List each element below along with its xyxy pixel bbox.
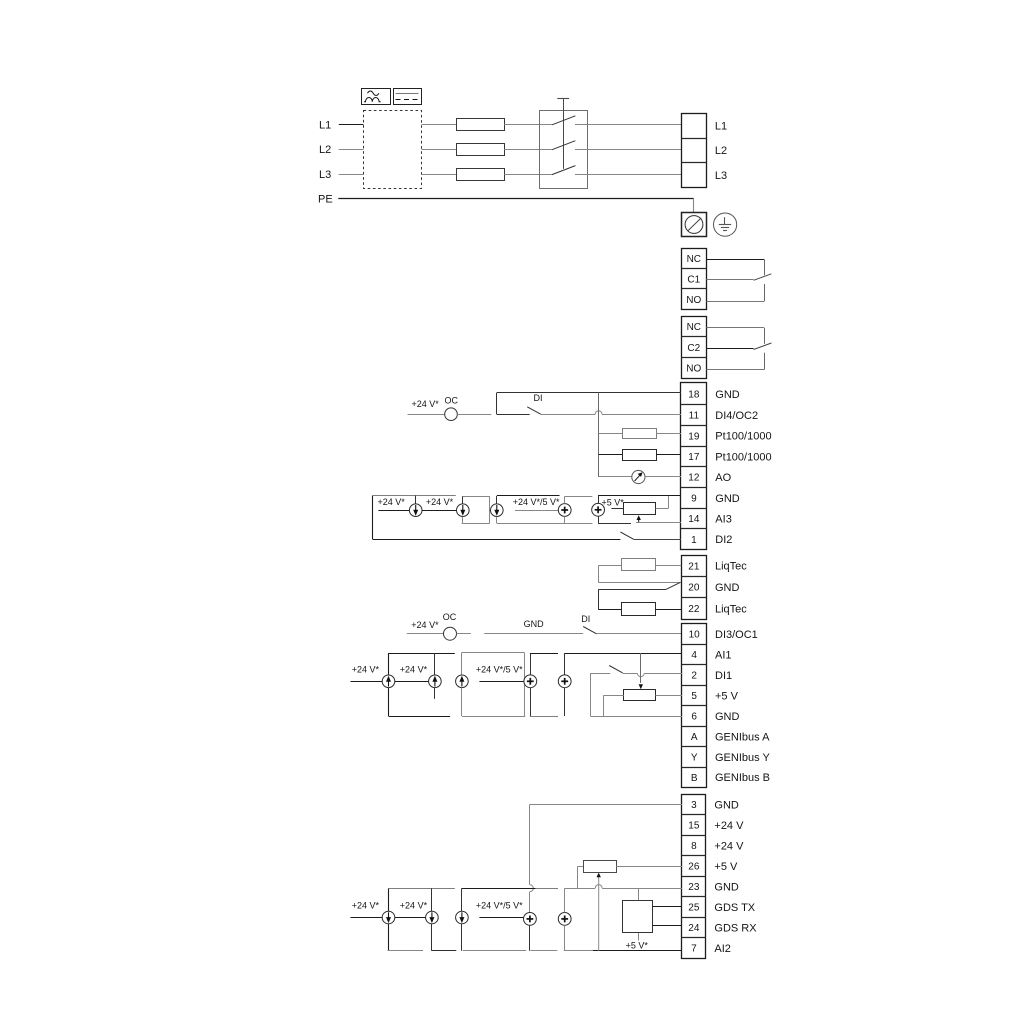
svg-text:3: 3 bbox=[691, 800, 697, 811]
svg-text:+5 V*: +5 V* bbox=[626, 940, 649, 950]
svg-text:NO: NO bbox=[686, 364, 701, 375]
svg-text:DI: DI bbox=[534, 393, 543, 403]
svg-text:GENIbus A: GENIbus A bbox=[715, 731, 770, 743]
svg-text:L3: L3 bbox=[319, 169, 331, 181]
svg-text:OC: OC bbox=[443, 612, 457, 622]
svg-text:C2: C2 bbox=[687, 343, 700, 354]
svg-text:20: 20 bbox=[688, 583, 700, 594]
svg-text:11: 11 bbox=[689, 411, 700, 422]
svg-text:6: 6 bbox=[691, 712, 697, 723]
svg-text:GND: GND bbox=[715, 493, 740, 505]
svg-text:+5 V: +5 V bbox=[715, 690, 739, 702]
svg-text:AI3: AI3 bbox=[715, 513, 732, 525]
svg-text:AI1: AI1 bbox=[715, 649, 732, 661]
svg-text:NC: NC bbox=[687, 322, 701, 333]
svg-text:+24 V*/5 V*: +24 V*/5 V* bbox=[513, 497, 560, 507]
svg-text:L1: L1 bbox=[715, 121, 727, 133]
svg-text:DI3/OC1: DI3/OC1 bbox=[715, 629, 758, 641]
svg-text:12: 12 bbox=[688, 473, 700, 484]
svg-text:7: 7 bbox=[691, 943, 697, 954]
svg-text:PE: PE bbox=[318, 193, 333, 205]
svg-text:LiqTec: LiqTec bbox=[715, 561, 747, 573]
svg-text:AI2: AI2 bbox=[714, 943, 731, 955]
svg-text:C1: C1 bbox=[687, 274, 700, 285]
svg-text:25: 25 bbox=[688, 902, 700, 913]
svg-text:Pt100/1000: Pt100/1000 bbox=[715, 431, 771, 443]
svg-text:DI4/OC2: DI4/OC2 bbox=[715, 410, 758, 422]
svg-text:GND: GND bbox=[524, 619, 545, 629]
svg-text:+24 V*: +24 V* bbox=[412, 399, 440, 409]
svg-text:L3: L3 bbox=[715, 170, 727, 182]
svg-text:GND: GND bbox=[714, 881, 739, 893]
svg-text:NC: NC bbox=[687, 254, 701, 265]
svg-text:2: 2 bbox=[691, 671, 697, 682]
svg-text:+24 V*/5 V*: +24 V*/5 V* bbox=[476, 901, 523, 911]
svg-text:Y: Y bbox=[691, 753, 698, 764]
svg-text:23: 23 bbox=[688, 882, 700, 893]
svg-text:+24 V: +24 V bbox=[714, 840, 744, 852]
svg-text:10: 10 bbox=[689, 630, 701, 641]
svg-text:DI1: DI1 bbox=[715, 670, 732, 682]
svg-text:+24 V*: +24 V* bbox=[426, 497, 454, 507]
svg-text:4: 4 bbox=[691, 650, 697, 661]
svg-text:B: B bbox=[691, 773, 698, 784]
svg-text:18: 18 bbox=[688, 389, 700, 400]
svg-text:LiqTec: LiqTec bbox=[715, 603, 747, 615]
svg-text:19: 19 bbox=[688, 431, 700, 442]
svg-text:L2: L2 bbox=[319, 144, 331, 156]
svg-text:+24 V*: +24 V* bbox=[352, 901, 380, 911]
svg-text:GND: GND bbox=[715, 582, 740, 594]
svg-text:GND: GND bbox=[715, 711, 740, 723]
svg-text:GND: GND bbox=[714, 799, 739, 811]
svg-text:+24 V*/5 V*: +24 V*/5 V* bbox=[476, 665, 523, 675]
svg-text:GDS RX: GDS RX bbox=[714, 922, 757, 934]
svg-text:24: 24 bbox=[688, 923, 700, 934]
svg-text:+24 V*: +24 V* bbox=[352, 665, 380, 675]
svg-text:L1: L1 bbox=[319, 119, 331, 131]
svg-text:1: 1 bbox=[691, 535, 697, 546]
svg-text:+24 V*: +24 V* bbox=[411, 620, 439, 630]
svg-text:L2: L2 bbox=[715, 145, 727, 157]
svg-text:OC: OC bbox=[445, 396, 459, 406]
svg-text:NO: NO bbox=[686, 295, 701, 306]
svg-text:8: 8 bbox=[691, 841, 697, 852]
svg-text:GDS TX: GDS TX bbox=[714, 902, 755, 914]
svg-text:17: 17 bbox=[688, 452, 700, 463]
svg-text:DI: DI bbox=[581, 614, 590, 624]
svg-text:DI2: DI2 bbox=[715, 534, 732, 546]
svg-text:+24 V: +24 V bbox=[714, 820, 744, 832]
svg-text:+24 V*: +24 V* bbox=[400, 901, 428, 911]
svg-text:22: 22 bbox=[688, 604, 700, 615]
svg-text:21: 21 bbox=[688, 561, 700, 572]
svg-text:A: A bbox=[691, 732, 698, 743]
svg-text:GENIbus Y: GENIbus Y bbox=[715, 752, 770, 764]
svg-text:GND: GND bbox=[715, 389, 740, 401]
svg-text:15: 15 bbox=[688, 820, 700, 831]
svg-text:+5 V*: +5 V* bbox=[602, 497, 625, 507]
svg-text:AO: AO bbox=[715, 472, 731, 484]
svg-text:26: 26 bbox=[688, 861, 700, 872]
svg-text:14: 14 bbox=[688, 514, 700, 525]
svg-text:+24 V*: +24 V* bbox=[378, 497, 406, 507]
svg-text:5: 5 bbox=[691, 691, 697, 702]
svg-text:+5 V: +5 V bbox=[714, 861, 738, 873]
svg-text:GENIbus B: GENIbus B bbox=[715, 772, 770, 784]
svg-text:9: 9 bbox=[691, 493, 697, 504]
svg-text:+24 V*: +24 V* bbox=[400, 665, 428, 675]
svg-text:Pt100/1000: Pt100/1000 bbox=[715, 451, 771, 463]
